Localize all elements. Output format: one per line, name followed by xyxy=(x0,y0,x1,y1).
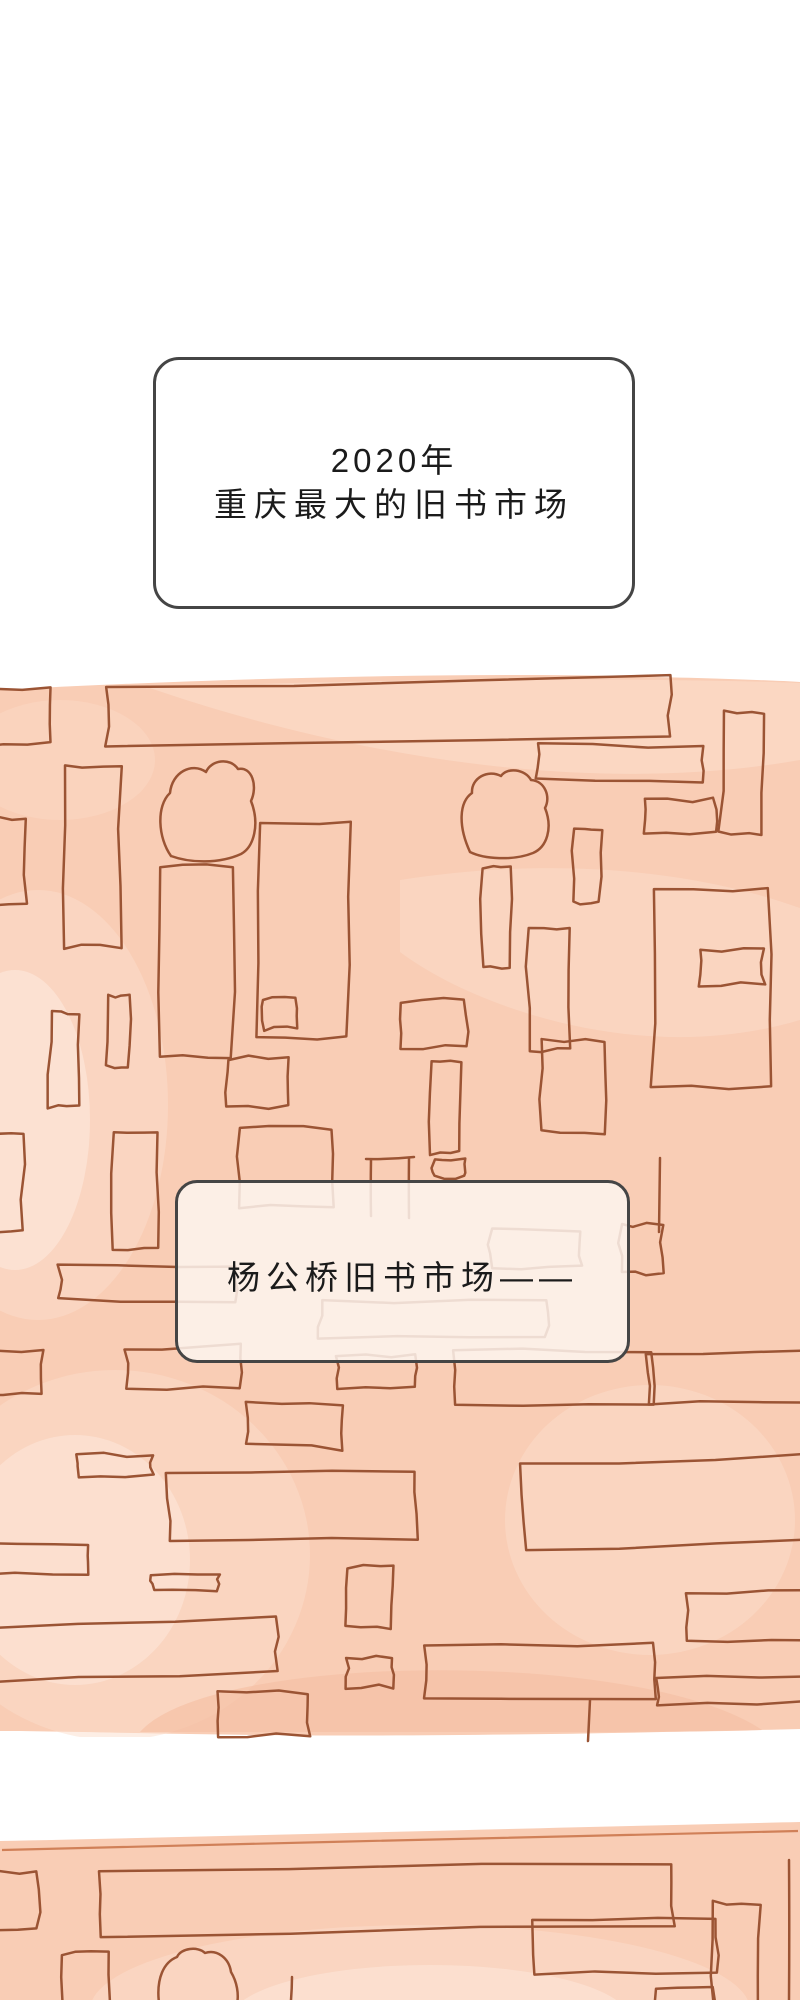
comic-page: { "comic": { "caption_box": { "line1": "… xyxy=(0,0,800,2000)
caption-title: 重庆最大的旧书市场 xyxy=(214,483,574,527)
sketch-line xyxy=(291,1977,292,2000)
sketch-line xyxy=(659,1158,660,1232)
comic-art-canvas xyxy=(0,0,800,2000)
caption-year: 2020年 xyxy=(331,439,457,483)
market-name-box: 杨公桥旧书市场—— xyxy=(175,1180,630,1363)
panel-gutter xyxy=(0,1737,800,1837)
caption-box: 2020年 重庆最大的旧书市场 xyxy=(153,357,635,609)
market-name-text: 杨公桥旧书市场—— xyxy=(227,1245,578,1299)
